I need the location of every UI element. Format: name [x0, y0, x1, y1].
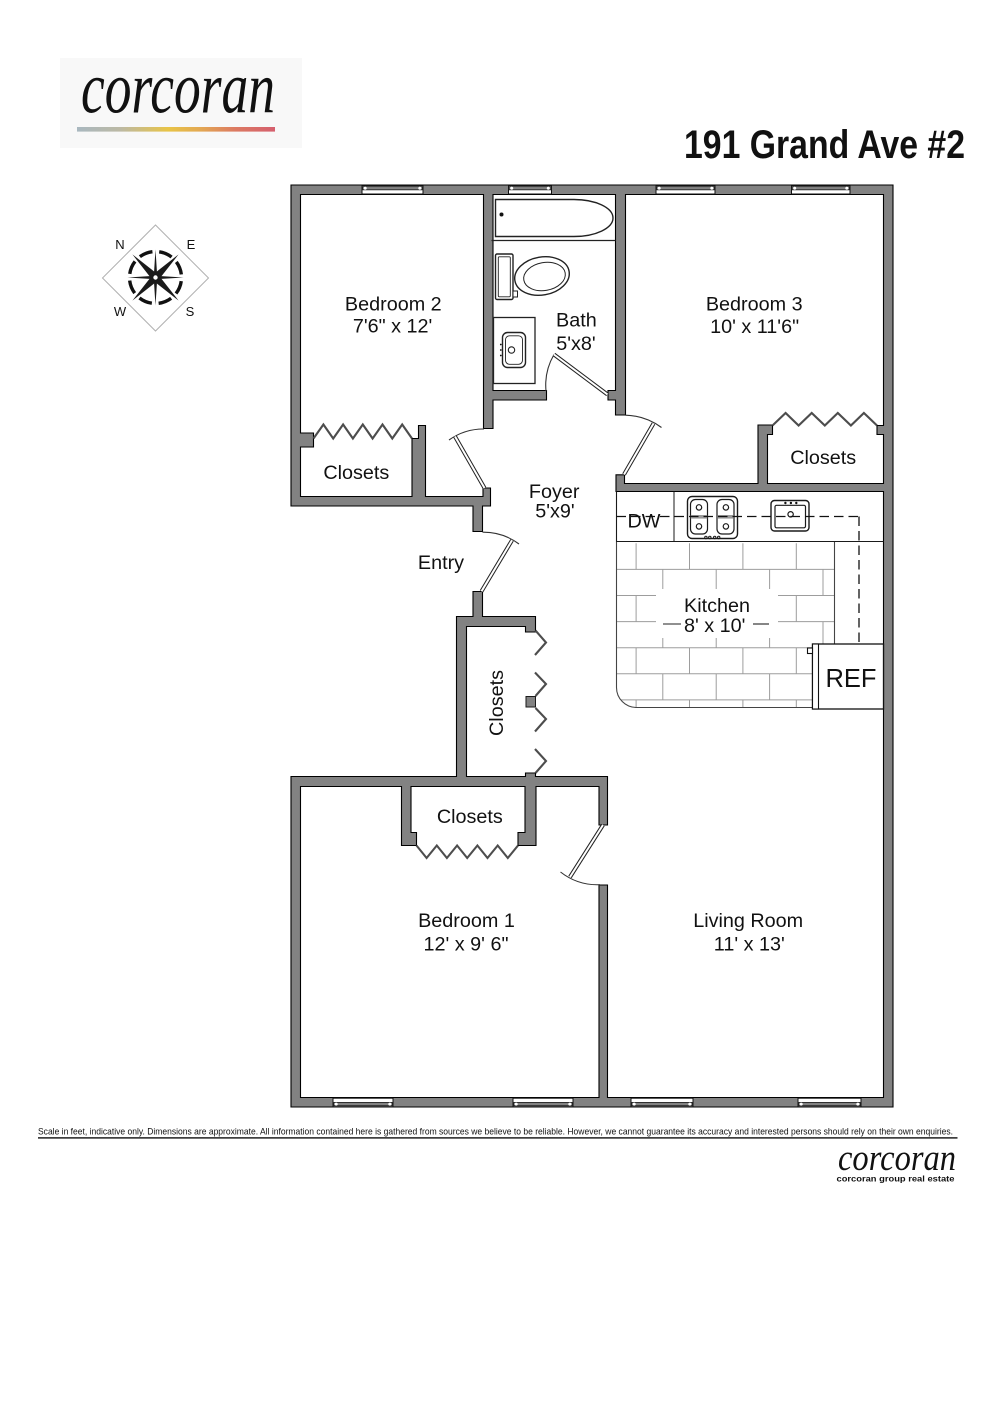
svg-text:10' x 11'6": 10' x 11'6" [710, 316, 799, 338]
svg-text:REF: REF [826, 665, 877, 693]
svg-text:Bedroom 3: Bedroom 3 [706, 294, 803, 316]
svg-text:Entry: Entry [418, 552, 464, 574]
svg-text:W: W [114, 304, 127, 319]
svg-text:corcoran group real estate: corcoran group real estate [837, 1174, 955, 1184]
svg-text:corcoran: corcoran [81, 48, 275, 129]
svg-text:Living Room: Living Room [693, 910, 803, 932]
svg-text:DW: DW [628, 511, 661, 533]
svg-text:Closets: Closets [790, 447, 856, 469]
svg-text:7'6" x 12': 7'6" x 12' [353, 316, 432, 338]
svg-text:Closets: Closets [486, 670, 508, 736]
svg-text:Bath: Bath [556, 310, 597, 332]
svg-text:Kitchen: Kitchen [684, 595, 750, 617]
svg-text:S: S [186, 304, 195, 319]
svg-text:5'x8': 5'x8' [556, 333, 595, 355]
svg-text:11' x 13': 11' x 13' [714, 934, 785, 956]
svg-text:191 Grand Ave #2: 191 Grand Ave #2 [684, 123, 965, 167]
svg-text:Closets: Closets [437, 806, 503, 828]
svg-text:5'x9': 5'x9' [535, 500, 574, 522]
svg-text:Bedroom 1: Bedroom 1 [418, 910, 515, 932]
svg-text:8' x 10': 8' x 10' [684, 615, 745, 637]
svg-text:Bedroom 2: Bedroom 2 [345, 294, 442, 316]
svg-text:N: N [115, 237, 124, 252]
svg-text:E: E [187, 237, 196, 252]
svg-text:Scale in feet, indicative only: Scale in feet, indicative only. Dimensio… [38, 1127, 953, 1137]
svg-text:corcoran: corcoran [838, 1137, 956, 1178]
svg-text:Closets: Closets [323, 462, 389, 484]
svg-text:12' x 9' 6": 12' x 9' 6" [424, 934, 509, 956]
